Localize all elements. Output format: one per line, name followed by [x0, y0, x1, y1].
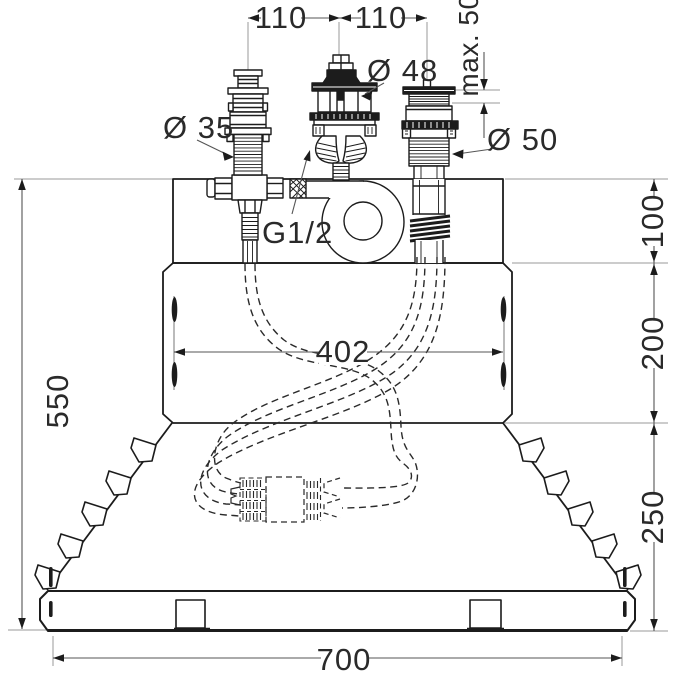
- dim-max-50: max. 50: [453, 0, 484, 97]
- hose-nipple: [290, 179, 306, 198]
- t-outlet-tube: [243, 240, 257, 263]
- dim-dia-35: Ø 35: [163, 110, 234, 145]
- dim-100: 100: [635, 194, 670, 249]
- trumpet-lower: [324, 499, 340, 518]
- dim-110-left: 110: [255, 0, 307, 35]
- dim-402: 402: [316, 334, 371, 369]
- right-standpipe: [402, 80, 458, 263]
- dim-250: 250: [635, 490, 670, 545]
- connector-clamp: [231, 487, 240, 505]
- dashed-hoses: [194, 257, 445, 516]
- t-outlet-nut: [238, 200, 262, 213]
- dim-thread-g12: G1/2: [262, 215, 333, 250]
- dim-dia-50: Ø 50: [487, 122, 558, 157]
- trumpet-upper: [324, 478, 340, 497]
- connector-block: [231, 477, 340, 522]
- technical-drawing-canvas: 110 110 max. 50 Ø 48 Ø 35 Ø 50 G1/2 100 …: [0, 0, 675, 675]
- base-cutout-left: [176, 600, 205, 628]
- slope-tabs-right: [519, 438, 641, 589]
- connector-ticks-right: [307, 481, 318, 520]
- dim-dia-48: Ø 48: [367, 53, 438, 88]
- dim-700: 700: [317, 642, 372, 675]
- slope-tabs-left: [35, 438, 156, 589]
- dim-200: 200: [635, 316, 670, 371]
- right-standpipe-thread: [409, 138, 449, 166]
- drawing-svg: 110 110 max. 50 Ø 48 Ø 35 Ø 50 G1/2 100 …: [0, 0, 675, 675]
- dim-110-right: 110: [355, 0, 407, 35]
- base-cutout-right: [470, 600, 501, 628]
- dim-550: 550: [40, 374, 75, 429]
- base-bar: [40, 591, 635, 631]
